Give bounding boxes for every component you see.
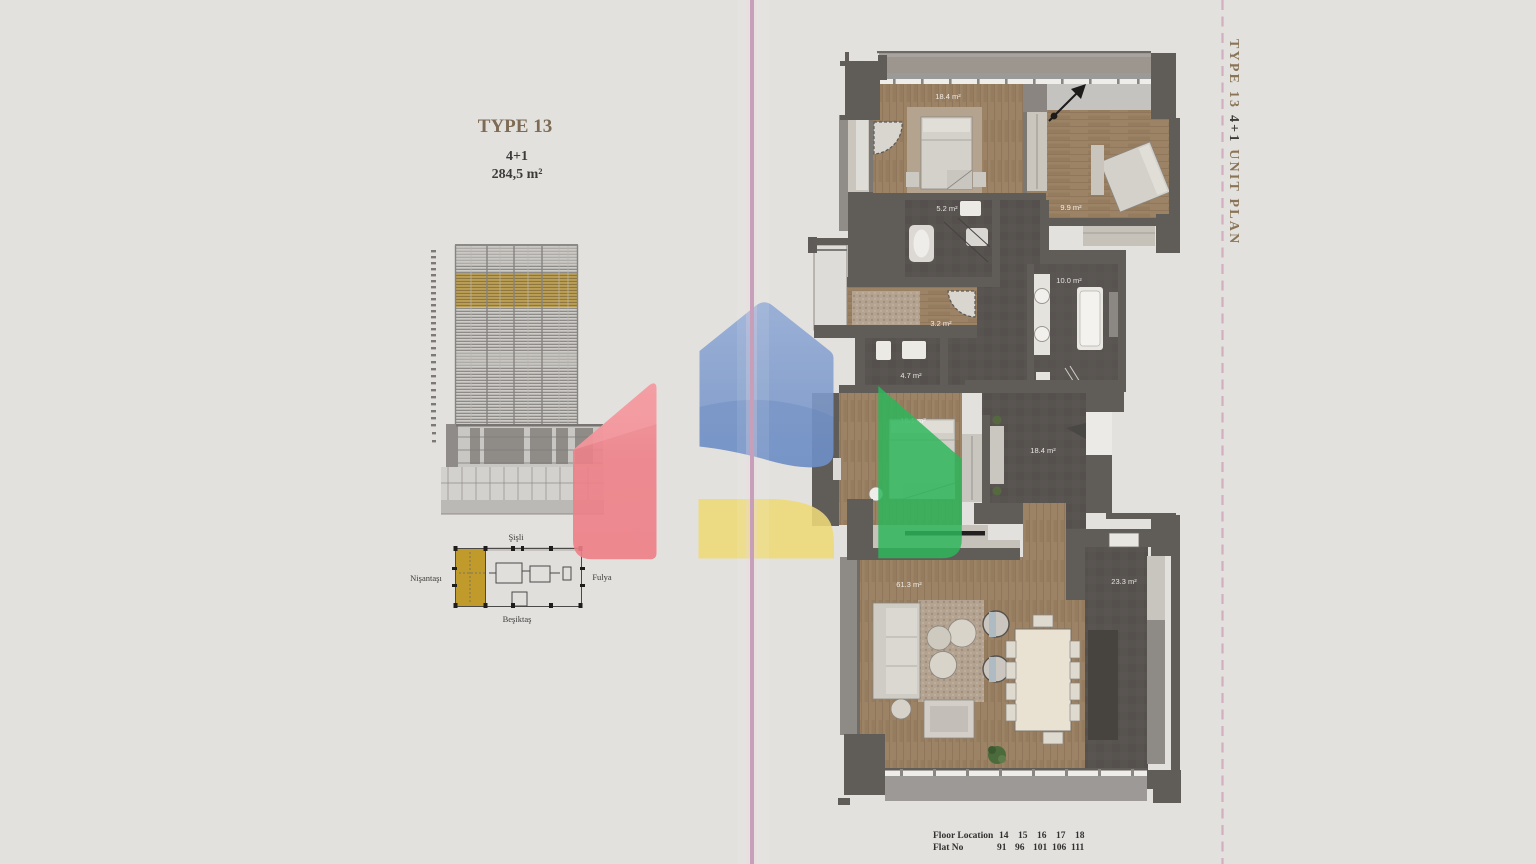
svg-text:16: 16	[1037, 831, 1047, 841]
svg-text:96: 96	[1015, 843, 1025, 853]
svg-text:18.4 m²: 18.4 m²	[935, 92, 961, 101]
svg-text:4+1: 4+1	[506, 149, 528, 164]
svg-text:61.3 m²: 61.3 m²	[896, 580, 922, 589]
svg-text:101: 101	[1033, 843, 1048, 853]
svg-text:TYPE 13 4+1 UNIT PLAN: TYPE 13 4+1 UNIT PLAN	[1226, 39, 1241, 245]
svg-text:Fulya: Fulya	[592, 572, 612, 582]
svg-text:91: 91	[997, 843, 1007, 853]
svg-text:23.3 m²: 23.3 m²	[1111, 577, 1137, 586]
svg-text:111: 111	[1071, 843, 1084, 853]
svg-text:9.9 m²: 9.9 m²	[1060, 203, 1082, 212]
svg-text:18: 18	[1075, 831, 1085, 841]
svg-text:TYPE 13: TYPE 13	[478, 116, 552, 137]
svg-text:4.7 m²: 4.7 m²	[900, 371, 922, 380]
svg-text:17: 17	[1056, 831, 1066, 841]
svg-text:106: 106	[1052, 843, 1067, 853]
svg-text:Şişli: Şişli	[508, 532, 524, 542]
svg-text:Nişantaşı: Nişantaşı	[410, 573, 442, 583]
svg-text:3.2 m²: 3.2 m²	[930, 319, 952, 328]
svg-text:5.2 m²: 5.2 m²	[936, 204, 958, 213]
svg-text:18.4 m²: 18.4 m²	[1030, 446, 1056, 455]
svg-text:10.0 m²: 10.0 m²	[1056, 276, 1082, 285]
svg-text:Floor Location: Floor Location	[933, 831, 994, 841]
svg-text:14: 14	[999, 831, 1009, 841]
svg-text:15: 15	[1018, 831, 1028, 841]
svg-text:Flat No: Flat No	[933, 843, 964, 853]
svg-text:Beşiktaş: Beşiktaş	[503, 614, 532, 624]
svg-text:284,5 m²: 284,5 m²	[492, 167, 543, 182]
